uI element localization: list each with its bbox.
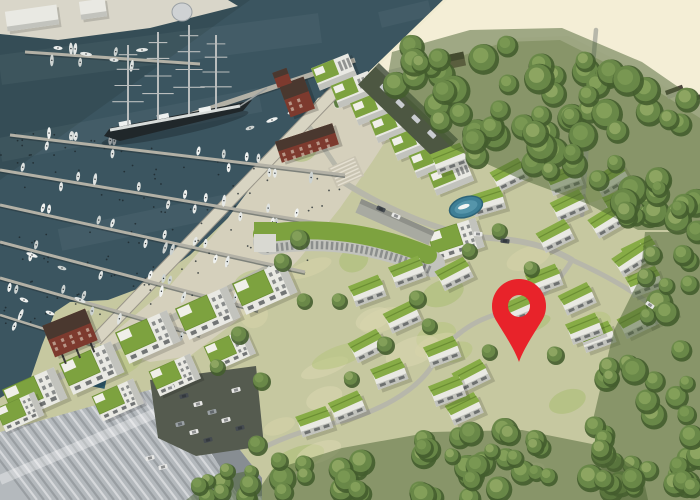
tree-highlight [530,466,538,474]
mooring-pole [31,281,33,283]
hotel-tower-roof [254,222,276,234]
tree-highlight [674,342,685,353]
mooring-pole [75,303,77,305]
mooring-pole [53,134,55,136]
mooring-pole [76,294,78,296]
tree-highlight [462,424,474,436]
tree-highlight [492,102,502,112]
mooring-pole [230,229,232,231]
warehouse-building [79,0,110,23]
tree-highlight [221,464,229,472]
mooring-pole [43,258,45,260]
mooring-pole [119,199,121,201]
tree-highlight [411,292,420,301]
tree-highlight [473,48,488,63]
mooring-pole [133,285,135,287]
mooring-pole [316,178,318,180]
mooring-pole [149,289,151,291]
tree-highlight [673,202,682,211]
tree-highlight [245,466,252,473]
tree-highlight [601,359,612,370]
tree-highlight [433,113,444,124]
mooring-pole [46,296,48,298]
tree-highlight [465,472,475,482]
tree-highlight [215,485,224,494]
mooring-pole [249,192,251,194]
tree-highlight [601,62,615,76]
mooring-pole [153,174,155,176]
mooring-pole [307,259,309,261]
tree-highlight [414,486,427,499]
tree-highlight [297,457,307,467]
tree-highlight [543,163,552,172]
mooring-pole [106,259,108,261]
tree-highlight [502,426,513,437]
map-image [0,0,700,500]
tree-highlight [529,67,544,82]
tree-highlight [609,123,621,135]
mooring-pole [207,209,209,211]
car-roof [503,239,507,242]
car-roof [476,232,480,235]
mooring-pole [31,242,33,244]
tree-highlight [276,484,286,494]
mooring-pole [30,154,32,156]
tree-highlight [661,111,671,121]
mooring-pole [153,266,155,268]
mooring-pole [308,210,310,212]
tree-highlight [490,479,503,492]
tree-highlight [658,304,670,316]
tree-highlight [526,123,540,137]
mooring-pole [250,247,252,249]
tree-highlight [483,345,491,353]
mooring-pole [154,178,156,180]
tree-highlight [299,469,308,478]
tree-highlight [668,388,680,400]
mooring-pole [155,169,157,171]
tree-highlight [618,203,629,214]
tree-highlight [469,457,481,469]
mooring-pole [0,154,2,156]
mooring-pole [111,275,113,277]
tree-highlight [581,87,592,98]
mooring-pole [94,140,96,142]
mooring-pole [143,197,145,199]
tree-highlight [292,231,302,241]
mooring-pole [29,154,31,156]
tree-highlight [649,170,662,183]
tree-highlight [609,156,618,165]
mooring-pole [328,190,330,192]
tree-highlight [466,131,479,144]
mooring-pole [90,140,92,142]
mooring-pole [181,268,183,270]
mooring-pole [183,166,185,168]
mooring-pole [160,183,162,185]
tree-highlight [345,372,353,380]
mooring-pole [74,150,76,152]
tree-highlight [678,90,690,102]
tree-highlight [484,119,496,131]
tree-highlight [587,418,598,429]
resort-aerial-map [0,0,700,500]
mooring-pole [21,139,23,141]
tree-highlight [679,407,689,417]
tree-highlight [641,309,649,317]
tree-highlight [645,247,655,257]
mooring-pole [195,260,197,262]
mooring-pole [134,223,136,225]
mooring-pole [55,171,57,173]
tree-highlight [564,109,574,119]
tree-highlight [276,255,285,264]
mooring-pole [136,273,138,275]
tree-highlight [350,482,360,492]
tree-highlight [542,469,551,478]
tree-highlight [565,145,575,155]
tree-highlight [528,439,537,448]
mooring-pole [32,133,34,135]
tree-highlight [581,467,595,481]
tree-highlight [639,392,651,404]
tree-highlight [233,328,242,337]
tree-highlight [352,452,365,465]
mooring-pole [160,211,162,213]
tree-highlight [596,472,606,482]
tree-highlight [617,69,633,85]
tree-highlight [604,370,613,379]
tree-highlight [682,277,692,287]
tree-highlight [625,361,639,375]
tree-highlight [193,479,202,488]
tree-highlight [672,458,682,468]
tree-highlight [493,224,501,232]
tree-highlight [499,37,510,48]
tree-highlight [431,50,442,61]
mooring-pole [89,231,91,233]
mooring-pole [339,189,341,191]
mooring-pole [218,174,220,176]
tree-highlight [525,262,533,270]
tree-highlight [683,427,695,439]
mooring-pole [107,256,109,258]
mooring-pole [64,147,66,149]
mooring-pole [47,261,49,263]
mooring-pole [321,205,323,207]
tree-highlight [211,360,219,368]
mooring-pole [253,168,255,170]
tree-highlight [653,182,661,190]
tree-highlight [639,270,648,279]
tree-highlight [501,76,511,86]
tree-highlight [413,56,423,66]
tree-highlight [250,437,260,447]
mooring-pole [153,206,155,208]
tree-highlight [549,348,558,357]
mooring-pole [151,148,153,150]
tree-highlight [573,125,588,140]
mooring-pole [128,241,130,243]
mooring-pole [237,193,239,195]
mooring-pole [197,272,199,274]
tree-highlight [681,377,689,385]
mooring-pole [34,240,36,242]
tree-highlight [596,103,612,119]
mooring-pole [190,208,192,210]
mooring-pole [99,313,101,315]
mooring-pole [232,185,234,187]
tree-highlight [593,441,603,451]
mooring-pole [17,162,19,164]
mooring-pole [19,236,21,238]
mooring-pole [17,140,19,142]
tree-highlight [675,247,686,258]
mooring-pole [201,223,203,225]
mooring-pole [30,321,32,323]
tree-highlight [255,374,264,383]
mooring-pole [45,234,47,236]
tree-highlight [379,338,388,347]
mooring-pole [132,165,134,167]
mooring-pole [122,200,124,202]
mooring-pole [78,169,80,171]
mooring-pole [32,162,34,164]
mooring-pole [21,145,23,147]
tree-highlight [452,105,464,117]
silo-tank [172,3,192,21]
mooring-pole [138,242,140,244]
tree-highlight [625,470,637,482]
mooring-pole [247,245,249,247]
tree-highlight [508,451,517,460]
mooring-pole [150,303,152,305]
tree-highlight [463,244,471,252]
tree-highlight [641,462,651,472]
tree-highlight [333,294,341,302]
tree-highlight [273,454,282,463]
mooring-pole [22,258,24,260]
mooring-pole [5,322,7,324]
mooring-pole [24,186,26,188]
mooring-pole [266,179,268,181]
tree-highlight [486,444,494,452]
mooring-pole [87,262,89,264]
mooring-pole [144,284,146,286]
mooring-pole [311,206,313,208]
mooring-pole [3,310,5,312]
mooring-pole [234,205,236,207]
tree-highlight [242,476,253,487]
tree-highlight [436,82,449,95]
mooring-pole [5,307,7,309]
tree-highlight [446,449,454,457]
tree-highlight [338,470,350,482]
tree-highlight [578,53,588,63]
tree-highlight [298,294,306,302]
tree-highlight [685,479,695,489]
mooring-pole [164,211,166,213]
tree-highlight [387,75,401,89]
mooring-pole [172,229,174,231]
mooring-pole [101,194,103,196]
mooring-pole [53,154,55,156]
tree-highlight [591,172,601,182]
tree-highlight [423,319,431,327]
mooring-pole [123,171,125,173]
car [473,231,482,236]
mooring-pole [34,318,36,320]
tree-highlight [660,279,668,287]
tree-highlight [533,107,543,117]
tree-highlight [417,440,426,449]
